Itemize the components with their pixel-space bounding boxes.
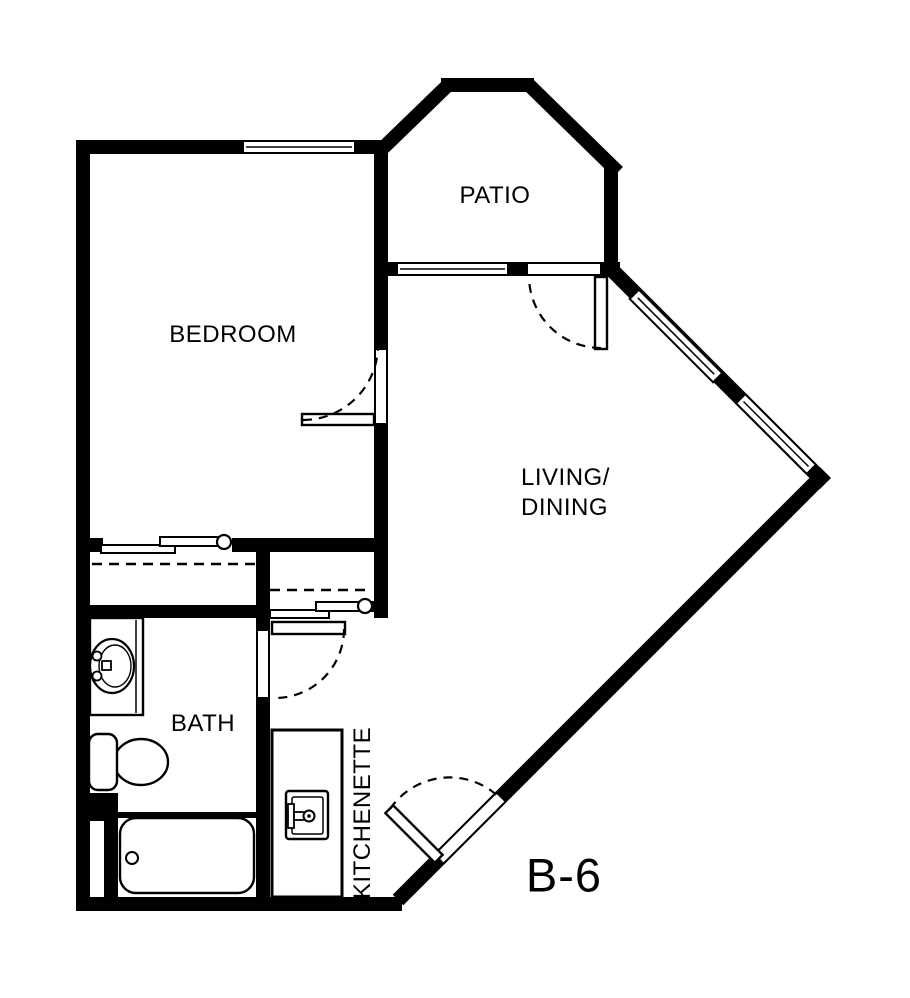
wall-patio-bottom-left — [381, 262, 398, 276]
unit-label: B-6 — [526, 848, 602, 903]
wall-bottom — [76, 897, 402, 911]
bedroom-door-swing-arc — [303, 347, 378, 420]
bath-door-leaf — [272, 622, 345, 634]
wall-patio-top — [441, 78, 534, 92]
wall-bedroom-bottom-left — [76, 538, 103, 552]
wall-bedroom-right-lower — [374, 552, 388, 618]
bath-door-opening — [257, 630, 269, 698]
bedroom-door-leaf — [302, 414, 374, 425]
bedroom-closet-sliding-door — [101, 535, 231, 553]
living-dining-label-line1: LIVING/ — [521, 463, 610, 493]
patio-door-opening — [527, 263, 601, 275]
wall-corner-bridge — [88, 793, 118, 821]
floor-plan: BEDROOM PATIO LIVING/ DINING BATH KITCHE… — [0, 0, 910, 998]
living-dining-label-line2: DINING — [521, 493, 610, 523]
wall-patio-bottom-mid — [508, 262, 527, 276]
living-closet-sliding-door — [270, 599, 373, 618]
bathtub-icon — [120, 818, 254, 893]
patio-window — [397, 263, 508, 275]
wall-patio-right — [604, 166, 618, 264]
living-window-lower — [736, 394, 816, 474]
bath-label: BATH — [171, 710, 235, 738]
walls — [76, 78, 831, 911]
wall-top-left — [76, 140, 243, 154]
bedroom-window — [243, 141, 355, 153]
floor-plan-drawing — [0, 0, 910, 998]
entry-door-opening — [434, 792, 505, 863]
wall-bedroom-right-upper — [374, 140, 388, 348]
wall-patio-diag-left — [381, 87, 446, 150]
kitchenette-label: KITCHENETTE — [349, 727, 377, 899]
wall-bedroom-bottom-right — [232, 538, 388, 552]
living-dining-label: LIVING/ DINING — [521, 463, 610, 523]
vanity-sink-icon — [90, 618, 143, 715]
slider-knob-icon — [358, 599, 372, 613]
tub-drain-icon — [126, 852, 138, 864]
wall-bedroom-right-mid — [374, 425, 388, 538]
patio-door-swing-arc — [529, 278, 601, 348]
patio-label: PATIO — [460, 182, 531, 210]
kitchenette-sink-icon — [286, 791, 328, 839]
slider-knob-icon — [217, 535, 231, 549]
toilet-icon — [89, 734, 168, 790]
patio-door-leaf — [595, 277, 607, 349]
wall-tub-stub — [104, 818, 118, 900]
bath-door-swing-arc — [277, 629, 344, 698]
living-window-upper — [630, 290, 723, 383]
wall-patio-diag-right — [529, 85, 618, 172]
bedroom-label: BEDROOM — [169, 321, 297, 349]
wall-bath-top — [76, 605, 270, 618]
wall-bath-right-lower — [256, 699, 270, 911]
wall-closet-divider — [256, 552, 270, 607]
entry-door-leaf — [385, 805, 442, 862]
wall-outer-left — [76, 140, 90, 911]
kitchenette-fixtures — [272, 730, 342, 897]
